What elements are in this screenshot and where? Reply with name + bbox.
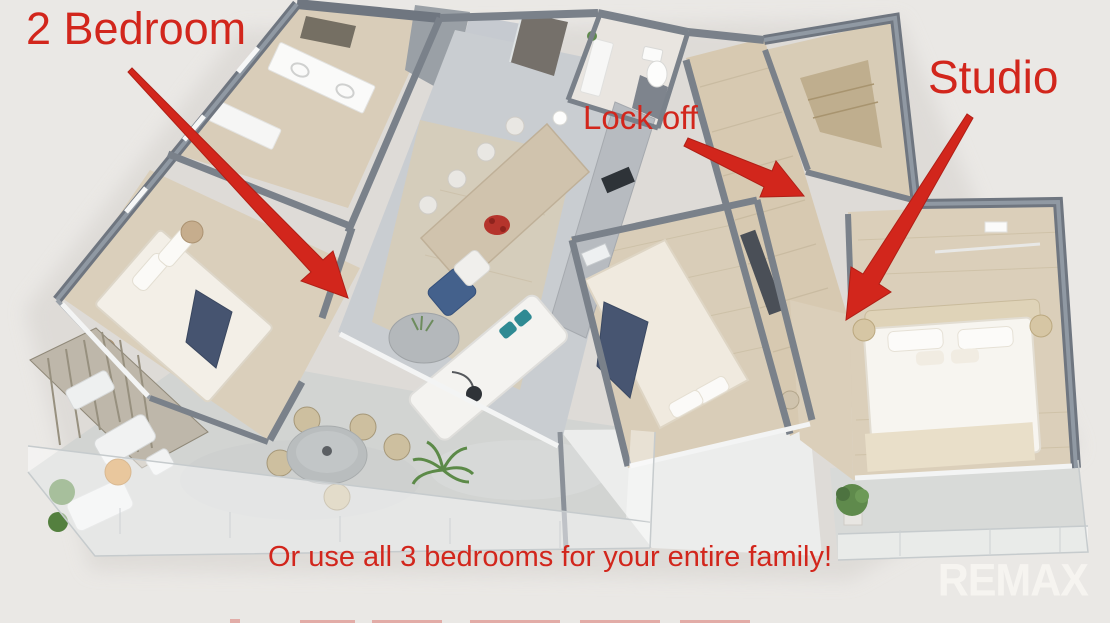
- red-flowers: [484, 215, 510, 235]
- coffee-table: [389, 313, 459, 363]
- bedroom-1-vase: [181, 221, 203, 243]
- island-vase: [553, 111, 567, 125]
- two-bedroom-label: 2 Bedroom: [26, 6, 246, 51]
- lock-off-label: Lock off: [583, 101, 698, 134]
- floor-plan-marketing-image: 2 Bedroom Lock off Studio Or use all 3 b…: [0, 0, 1110, 623]
- studio-nightstand-2: [1030, 315, 1052, 337]
- studio-bed: [864, 299, 1041, 472]
- remax-logo: REMAX: [938, 559, 1088, 604]
- studio-nightstand: [853, 319, 875, 341]
- studio-label: Studio: [928, 54, 1058, 100]
- cropped-text-fragment: [230, 619, 750, 623]
